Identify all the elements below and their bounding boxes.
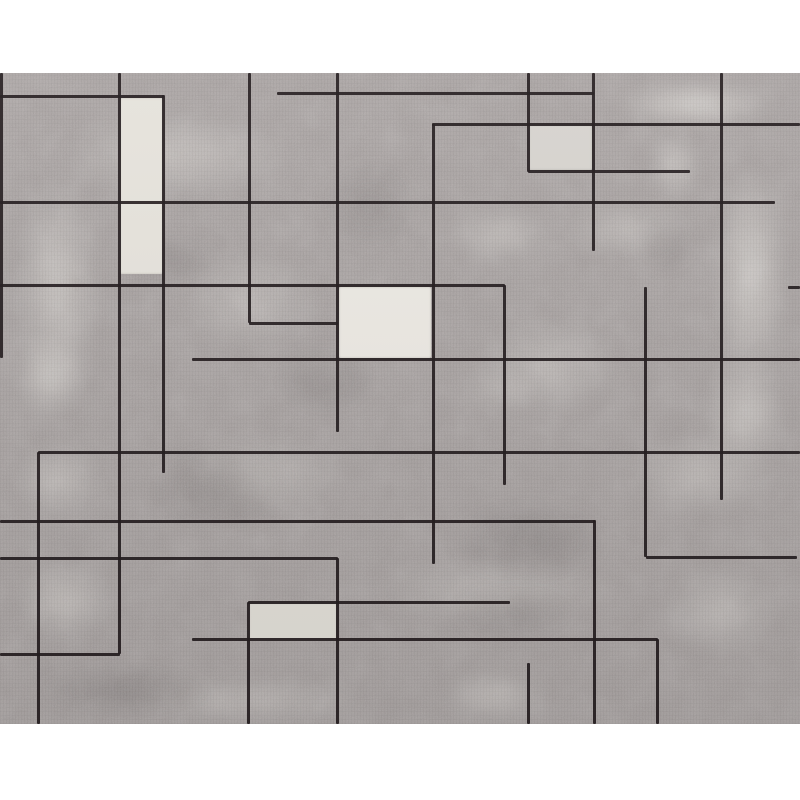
photo-vignette xyxy=(0,73,800,724)
product-photo-canvas xyxy=(0,0,800,800)
rug-image xyxy=(0,73,800,724)
